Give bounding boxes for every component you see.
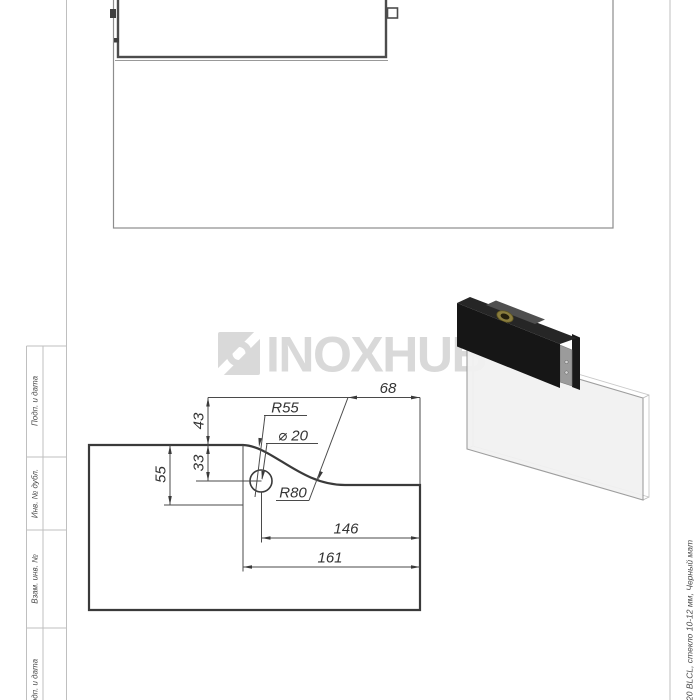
clamp-back-plate xyxy=(572,334,580,390)
dim-43: 43 xyxy=(191,412,208,429)
top-view-pivot-pin xyxy=(388,8,398,18)
product-note: 20 BLCL, стекло 10-12 мм, Черный мат xyxy=(685,540,695,700)
inoxhub-logo-icon xyxy=(213,328,265,380)
clamp-screw-bottom xyxy=(565,371,568,374)
top-view-left-tab xyxy=(110,9,116,18)
dim-33: 33 xyxy=(191,454,208,471)
drawing-sheet: Подп. и дата Инв. № дубл. Взам. инв. № П… xyxy=(0,0,700,700)
drawing-canvas: Подп. и дата Инв. № дубл. Взам. инв. № П… xyxy=(0,0,700,700)
dim-68: 68 xyxy=(380,380,397,397)
dim-dia20: ⌀ 20 xyxy=(278,428,309,445)
watermark: INOXHUB xyxy=(213,327,486,383)
glass-outline xyxy=(89,445,420,610)
cutout-drawing: 68 146 161 43 33 55 R55 ⌀ 20 R80 xyxy=(89,380,420,610)
dim-161: 161 xyxy=(317,550,342,567)
clamp-screw-top xyxy=(565,360,568,363)
margin-label-podp-1: Подп. и дата xyxy=(31,375,40,426)
dim-146: 146 xyxy=(333,521,359,538)
watermark-text: INOXHUB xyxy=(266,327,486,383)
margin-labels: Подп. и дата Инв. № дубл. Взам. инв. № П… xyxy=(31,375,40,700)
top-view xyxy=(110,0,613,228)
top-view-clamp xyxy=(118,0,386,57)
margin-label-vzam-inv: Взам. инв. № xyxy=(31,554,40,604)
clamp-spacer xyxy=(560,345,572,386)
dim-r80: R80 xyxy=(279,485,307,502)
dimension-texts: 68 146 161 43 33 55 R55 ⌀ 20 R80 xyxy=(153,380,397,567)
top-view-left-tick xyxy=(114,38,119,43)
iso-view xyxy=(457,297,649,500)
margin-label-inv-dubl: Инв. № дубл. xyxy=(31,469,40,518)
margin-label-podp-2: Подп. и дата xyxy=(31,658,40,700)
dim-55: 55 xyxy=(153,466,170,483)
dim-r55: R55 xyxy=(271,400,299,417)
